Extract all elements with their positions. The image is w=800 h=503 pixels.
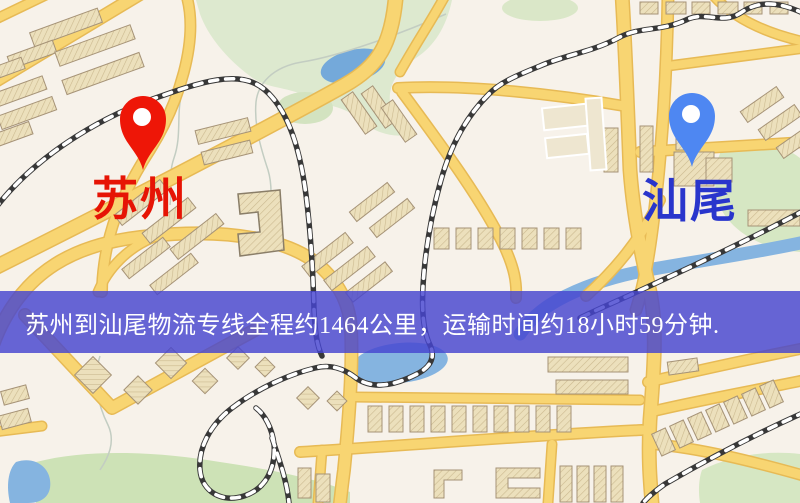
destination-city-label: 汕尾 xyxy=(640,179,740,225)
destination-pin-icon[interactable] xyxy=(666,93,718,171)
origin-city-label: 苏州 xyxy=(92,177,188,223)
route-info-banner: 苏州到汕尾物流专线全程约1464公里，运输时间约18小时59分钟. xyxy=(0,291,800,353)
map-background xyxy=(0,0,800,503)
origin-pin-icon[interactable] xyxy=(117,96,169,174)
route-info-text: 苏州到汕尾物流专线全程约1464公里，运输时间约18小时59分钟. xyxy=(25,305,720,340)
map-canvas[interactable]: 苏州 汕尾 苏州到汕尾物流专线全程约1464公里，运输时间约18小时59分钟. xyxy=(0,0,800,503)
